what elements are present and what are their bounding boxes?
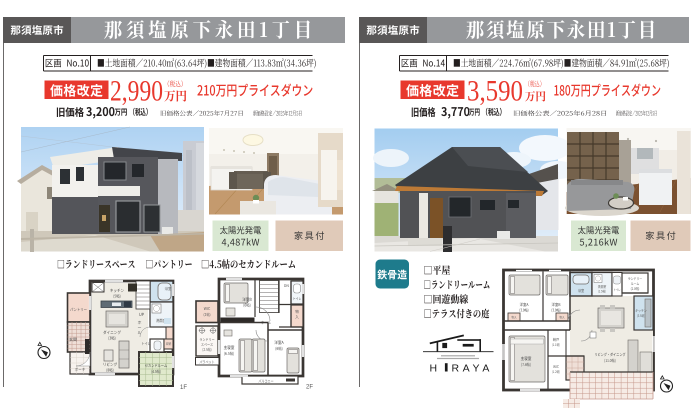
- svg-text:3,590: 3,590: [467, 76, 523, 108]
- svg-text:RAYA: RAYA: [452, 363, 493, 375]
- svg-text:2F: 2F: [306, 385, 313, 391]
- svg-text:H: H: [430, 363, 441, 375]
- svg-text:1F: 1F: [180, 385, 187, 391]
- svg-text:2,990: 2,990: [110, 76, 163, 108]
